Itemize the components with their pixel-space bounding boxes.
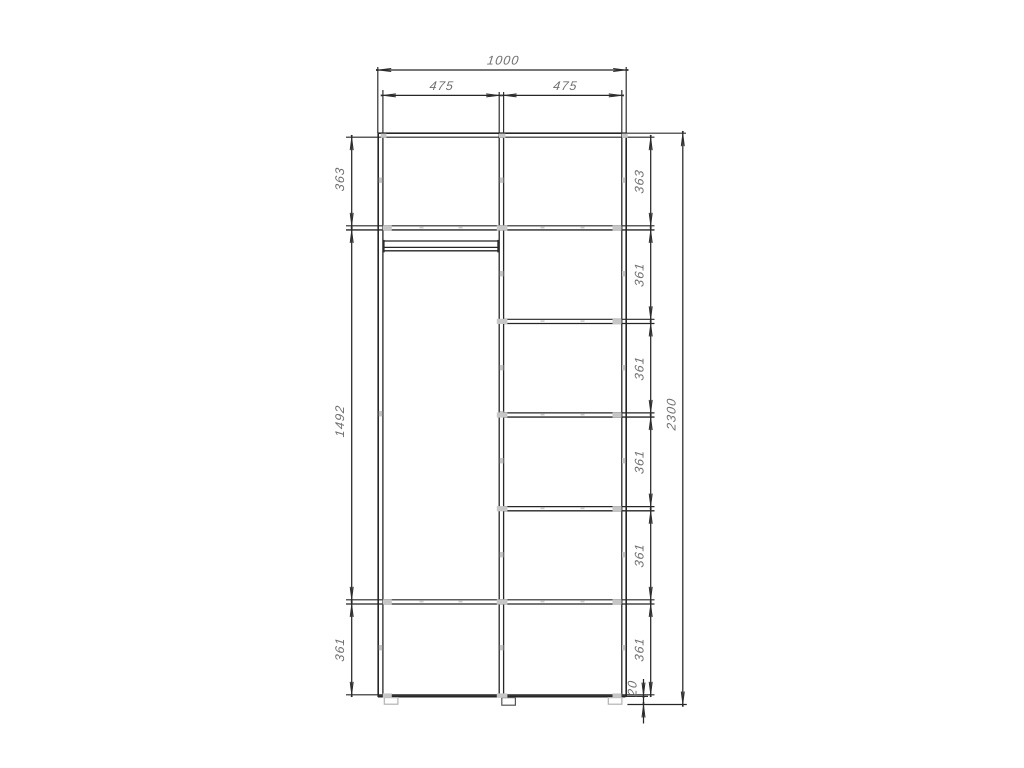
svg-text:361: 361: [632, 449, 646, 475]
svg-text:363: 363: [333, 166, 347, 192]
svg-text:1492: 1492: [333, 404, 347, 438]
svg-text:363: 363: [632, 168, 646, 194]
svg-text:2300: 2300: [665, 397, 679, 432]
svg-text:361: 361: [333, 636, 347, 662]
svg-text:361: 361: [632, 355, 646, 381]
svg-text:1000: 1000: [486, 54, 520, 68]
svg-text:20: 20: [625, 679, 639, 698]
svg-text:361: 361: [632, 262, 646, 288]
svg-text:361: 361: [632, 542, 646, 568]
svg-text:475: 475: [552, 79, 578, 93]
svg-text:361: 361: [632, 636, 646, 662]
svg-text:475: 475: [429, 79, 455, 93]
